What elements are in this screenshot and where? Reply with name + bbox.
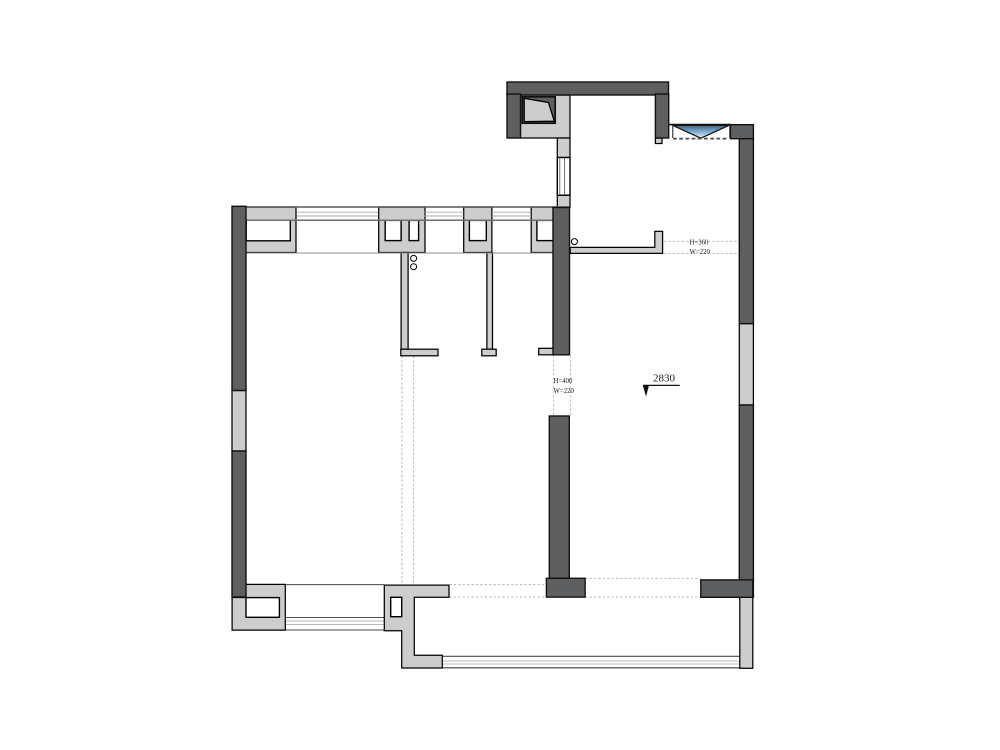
svg-text:W=220: W=220: [690, 249, 711, 256]
svg-text:H=360: H=360: [690, 239, 710, 246]
svg-text:2830: 2830: [653, 373, 676, 385]
svg-text:H=400: H=400: [554, 378, 574, 385]
svg-text:W=220: W=220: [554, 388, 575, 395]
